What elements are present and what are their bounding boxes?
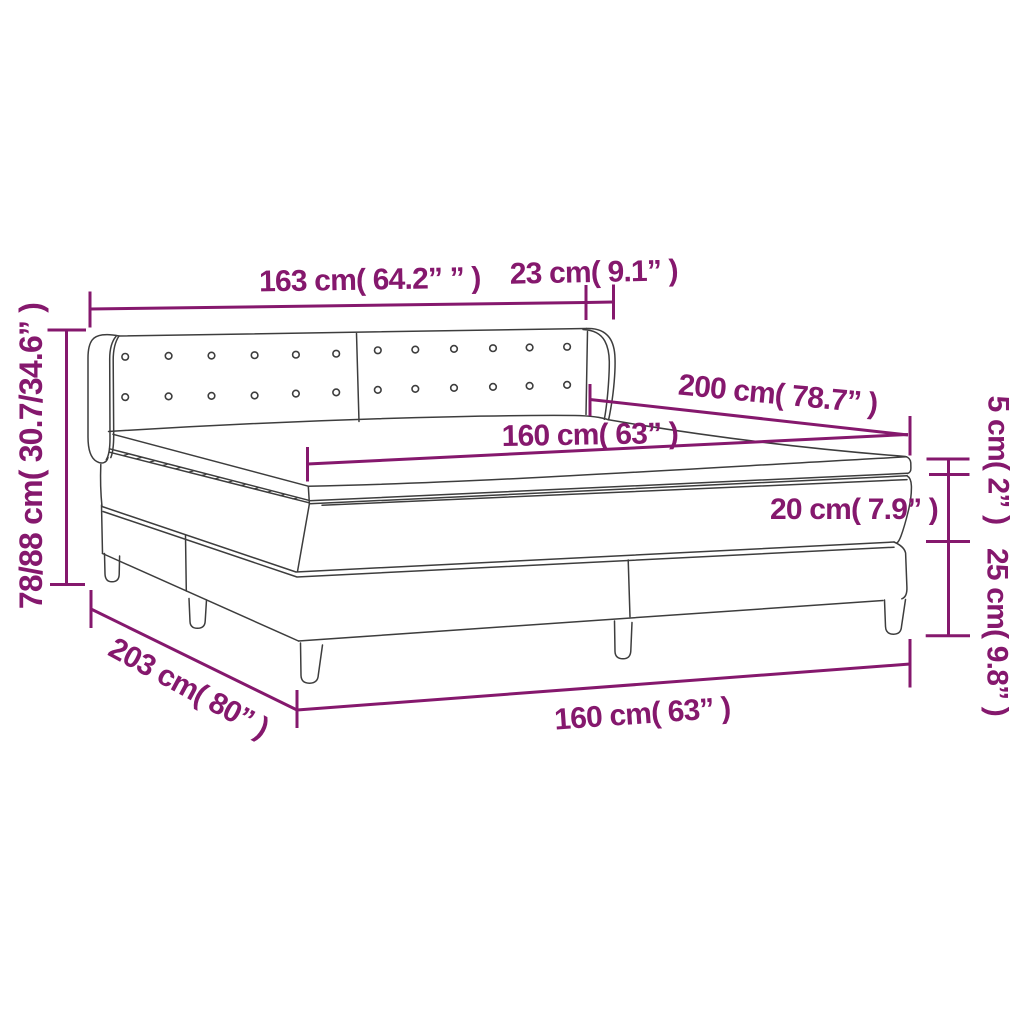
svg-text:23 cm( 9.1” ): 23 cm( 9.1” ) — [509, 254, 678, 291]
svg-text:163 cm( 64.2” ” ): 163 cm( 64.2” ” ) — [259, 262, 481, 299]
svg-text:20 cm( 7.9” ): 20 cm( 7.9” ) — [770, 493, 938, 526]
svg-text:78/88 cm( 30.7/34.6” ): 78/88 cm( 30.7/34.6” ) — [13, 303, 49, 609]
svg-text:160 cm( 63” ): 160 cm( 63” ) — [501, 417, 678, 453]
svg-text:5 cm( 2” ): 5 cm( 2” ) — [982, 396, 1015, 525]
svg-text:25 cm( 9.8” ): 25 cm( 9.8” ) — [981, 548, 1014, 716]
